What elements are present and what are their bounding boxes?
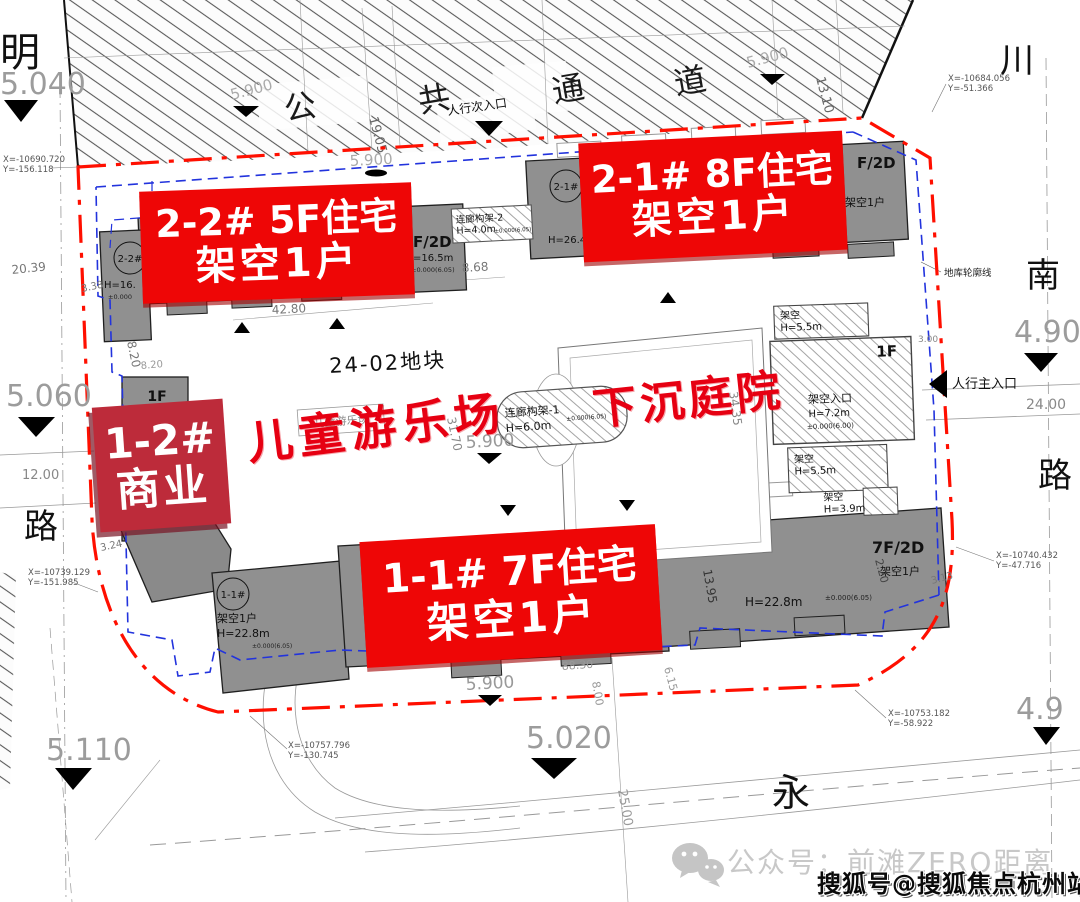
height-1-1: H=22.8m xyxy=(217,627,270,640)
type-2-2: F/2D xyxy=(413,233,452,251)
dim-3-00: 3.00 xyxy=(918,335,938,345)
banner-1-1: 1-1# 7F住宅 架空1户 xyxy=(359,524,662,668)
banner-2-2-line2: 架空1户 xyxy=(195,239,360,289)
coord-5-x: X=-10753.182 xyxy=(888,709,950,719)
level-2-2: ±0.000 xyxy=(108,293,132,301)
level-1-1-mid: ±0.000(6.05) xyxy=(825,594,872,602)
corridor-char-dao: 道 xyxy=(671,60,709,103)
main-entrance-label: 人行主入口 xyxy=(952,377,1017,392)
coord-5-y: Y=-58.922 xyxy=(887,719,933,729)
wechat-icon xyxy=(668,838,728,894)
stilt-b-height: H=5.5m xyxy=(794,465,836,477)
coord-3-y: Y=-151.985 xyxy=(27,578,79,588)
level-2-2b: ±0.000(6.05) xyxy=(411,266,455,274)
road-right-mid: 南 xyxy=(1026,256,1060,296)
main-entrance-arrow xyxy=(929,370,947,398)
dim-12-00: 12.00 xyxy=(22,468,59,483)
type-2-1: F/2D xyxy=(857,154,896,172)
coord-1-y: Y=-156.118 xyxy=(2,165,54,175)
banner-2-1-line2: 架空1户 xyxy=(631,191,797,244)
coord-3-x: X=-10739.129 xyxy=(28,568,90,578)
building-tag-1-1: 1-1# xyxy=(221,590,246,601)
garage-outline-label: 地库轮廓线 xyxy=(944,267,992,279)
dim-20-39: 20.39 xyxy=(11,259,47,277)
type-1-1-right: 7F/2D xyxy=(872,538,924,557)
banner-1-2: 1-2# 商业 xyxy=(92,399,231,533)
stilt-entry-height: H=7.2m xyxy=(808,408,850,420)
coord-6-x: X=-10740.432 xyxy=(996,551,1058,561)
coord-1-x: X=-10690.720 xyxy=(3,155,65,165)
corridor-char-tong: 通 xyxy=(549,68,587,111)
banner-1-1-line2: 架空1户 xyxy=(425,590,599,647)
corridor2-height: H=4.0m xyxy=(456,224,496,237)
elev-49: 4.9 xyxy=(1016,692,1064,727)
elev-5900-bottom: 5.900 xyxy=(465,672,515,695)
banner-2-2-line1: 2-2# 5F住宅 xyxy=(154,195,397,246)
banner-1-2-line2: 商业 xyxy=(115,461,212,517)
height-2-2b: =16.5m xyxy=(413,253,453,264)
stilt-entry: 架空入口 xyxy=(808,391,852,407)
site-plan: 公 共 通 道 5.900 5.900 19.05 13.10 人行次入口 xyxy=(0,0,1080,902)
plot-name: 24-02地块 xyxy=(329,348,447,378)
stilt-c: 架空 xyxy=(823,490,843,504)
stilt-2-1: 架空1户 xyxy=(845,195,885,209)
elev-5040: 5.040 xyxy=(0,67,86,102)
elev-5110: 5.110 xyxy=(46,733,132,768)
banner-2-1-line1: 2-1# 8F住宅 xyxy=(590,147,834,201)
stilt-b: 架空 xyxy=(794,452,814,466)
stilt-structures: 架空 H=5.5m 1F 架空入口 H=7.2m ±0.000(6.00) 架空… xyxy=(769,302,917,519)
dim-42-80: 42.80 xyxy=(271,301,306,317)
coord-4-x: X=-10757.796 xyxy=(288,741,350,751)
dim-6-15: 6.15 xyxy=(661,665,680,692)
road-left: 路 xyxy=(24,507,58,547)
label-1f-courtyard: 1F xyxy=(876,342,897,361)
stilt-1-1: 架空1户 xyxy=(217,611,257,625)
height-2-1: H=26.4 xyxy=(548,235,586,246)
building-tag-2-1: 2-1# xyxy=(554,182,579,193)
dim-24-00: 24.00 xyxy=(1026,397,1066,413)
elev-4900: 4.900 xyxy=(1014,315,1080,350)
dim-8-00: 8.00 xyxy=(589,680,606,706)
elev-5900-top: 5.900 xyxy=(349,150,393,170)
coord-2-y: Y=-51.366 xyxy=(947,84,993,94)
dim-3-24: 3.24 xyxy=(99,539,123,554)
left-road-hatch xyxy=(0,572,16,790)
banner-2-2: 2-2# 5F住宅 架空1户 xyxy=(139,182,415,303)
coord-2-x: X=-10684.056 xyxy=(948,74,1010,84)
banner-2-1: 2-1# 8F住宅 架空1户 xyxy=(578,131,847,263)
road-right: 路 xyxy=(1038,456,1072,496)
stilt-c-height: H=3.9m xyxy=(824,503,866,515)
building-tag-2-2: 2-2# xyxy=(118,254,143,265)
corridor-char-gong: 公 xyxy=(281,86,319,129)
stilt-entry-level: ±0.000(6.00) xyxy=(807,422,854,432)
height-2-2: H=16. xyxy=(104,280,136,291)
stilt-a: 架空 xyxy=(780,308,800,322)
dim-25-00: 25.00 xyxy=(614,788,635,827)
coord-6-y: Y=-47.716 xyxy=(995,561,1041,571)
watermark-sohu: 搜狐号@搜狐焦点杭州站 xyxy=(817,864,1080,899)
road-bottom: 永 xyxy=(772,771,810,815)
elev-5020: 5.020 xyxy=(526,721,612,756)
stilt-a-height: H=5.5m xyxy=(780,322,822,334)
height-1-1-mid: H=22.8m xyxy=(745,595,803,609)
dim-8-68: 8.68 xyxy=(461,260,488,275)
level-1-1: ±0.000(6.05) xyxy=(252,643,292,650)
coord-4-y: Y=-130.745 xyxy=(287,751,339,761)
elev-5060: 5.060 xyxy=(6,379,92,414)
corridor-frame-2: 连廊构架-2 H=4.0m ±0.000(6.05) xyxy=(451,205,533,243)
dim-88-30: 88.30 xyxy=(561,658,593,673)
dim-8-20b: 8.20 xyxy=(140,359,163,372)
